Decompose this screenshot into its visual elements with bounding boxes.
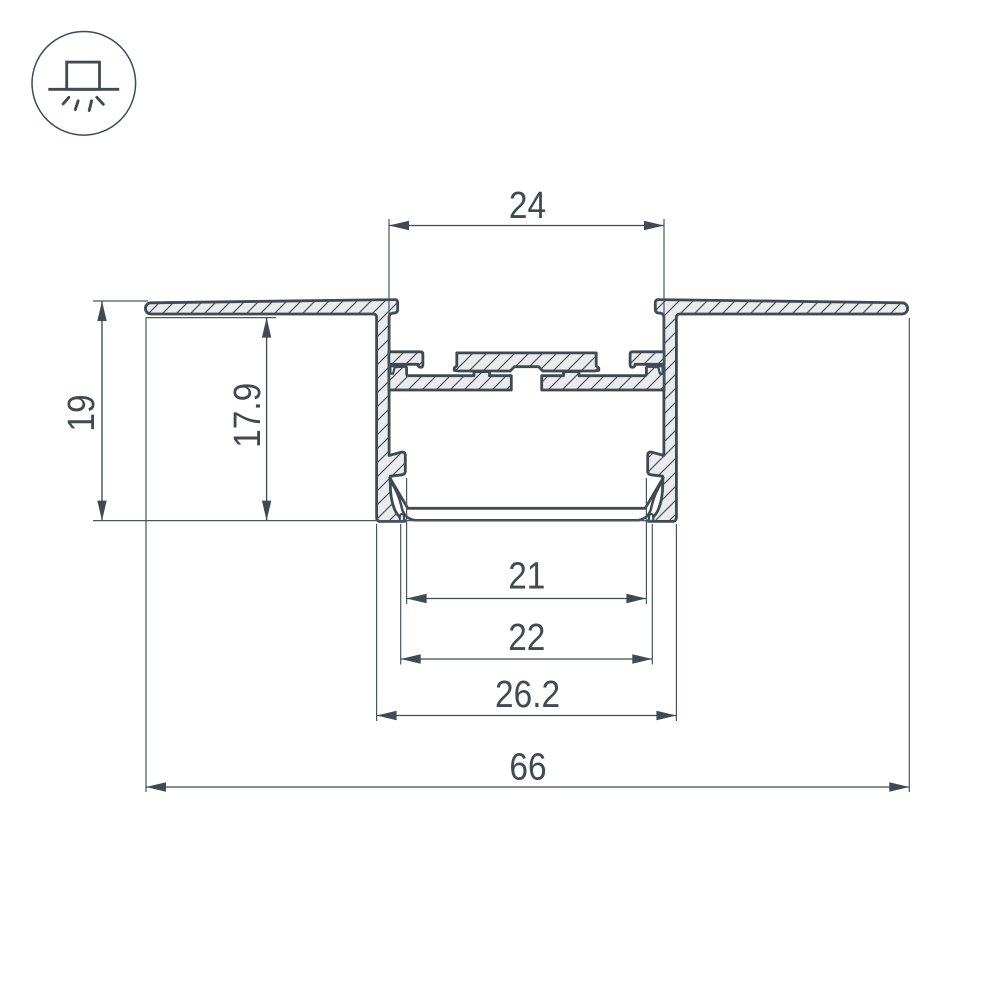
svg-text:22: 22 bbox=[508, 616, 545, 658]
svg-text:17.9: 17.9 bbox=[226, 383, 268, 448]
svg-text:66: 66 bbox=[509, 746, 546, 788]
svg-text:26.2: 26.2 bbox=[495, 673, 560, 715]
svg-text:24: 24 bbox=[509, 184, 546, 226]
svg-text:19: 19 bbox=[60, 394, 102, 431]
svg-text:21: 21 bbox=[508, 555, 545, 597]
